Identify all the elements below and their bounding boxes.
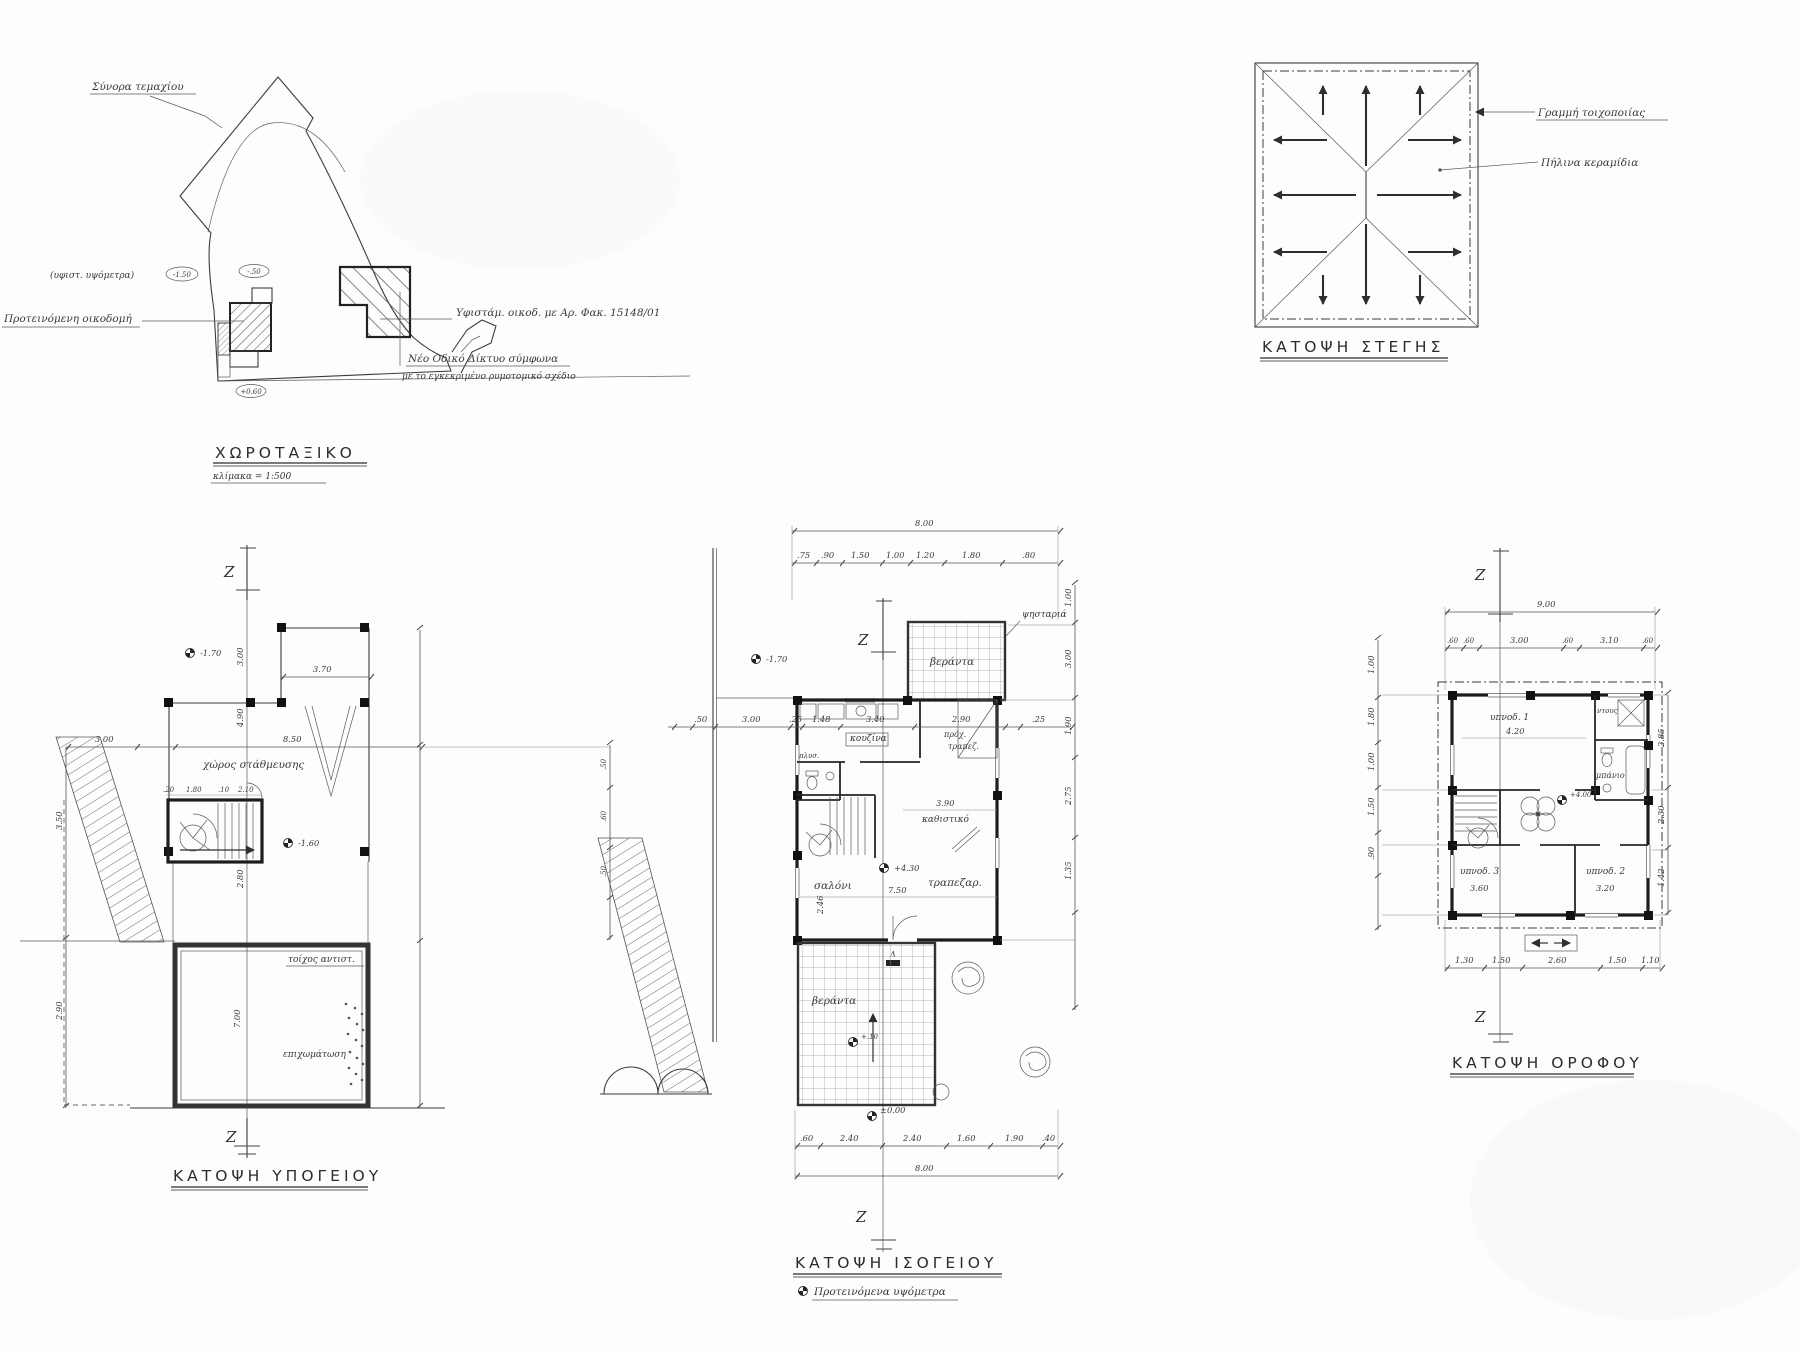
level-value: -1.60 [298, 838, 320, 848]
dim: 3.00 [742, 714, 761, 724]
dim: 1.60 [957, 1133, 976, 1143]
retaining-wall-label: τοίχος αντιστ. [288, 954, 355, 965]
dim: 2.75 [1063, 787, 1073, 806]
shower-label: ντους [1597, 707, 1618, 715]
dim: 1.00 [1366, 752, 1376, 771]
dim: 1.50 [1366, 797, 1376, 816]
level-value: ±0.00 [880, 1105, 906, 1115]
site-title: ΧΩΡΟΤΑΞΙΚΟ [215, 444, 356, 462]
dim: 1.80 [1366, 707, 1376, 726]
dim: 1.80 [962, 550, 981, 560]
dim-total: 8.00 [915, 518, 934, 528]
dim: 2.40 [902, 1133, 922, 1143]
proposed-building-label: Προτεινόμενη οικοδομή [3, 312, 132, 325]
section-letter: Z [223, 563, 235, 581]
dim: 8.50 [283, 734, 302, 744]
dim: 3.40 [866, 714, 885, 724]
dim: .60 [800, 1133, 814, 1143]
dim: .80 [1022, 550, 1036, 560]
road-label-line2: με το εγκεκριμένο ρυμοτομικό σχέδιο [402, 371, 576, 382]
dim: 1.50 [851, 550, 870, 560]
dim: 3.20 [1596, 883, 1615, 893]
dim: 1.35 [1063, 862, 1073, 880]
lower-veranda: βεράντα +.10 [798, 943, 935, 1105]
dim: 2.40 [839, 1133, 859, 1143]
dim: 2.85 [1656, 729, 1666, 748]
level-symbol [186, 649, 195, 658]
dim: .10 [218, 786, 230, 794]
dim: 1.20 [916, 550, 935, 560]
spot-elevation: -1.50 [173, 271, 191, 279]
dim-total: 8.00 [915, 1163, 934, 1173]
floor-title: ΚΑΤΟΨΗ ΟΡΟΦΟΥ [1452, 1054, 1643, 1072]
dim: 3.10 [1600, 635, 1619, 645]
level-symbol [284, 839, 293, 848]
roof-title-block: ΚΑΤΟΨΗ ΣΤΕΓΗΣ [1260, 338, 1448, 361]
dim: 3.90 [936, 798, 955, 808]
level-symbol [849, 1038, 858, 1047]
dim: .50 [600, 865, 608, 877]
veranda-label: βεράντα [811, 995, 856, 1007]
section-letter: Z [1474, 566, 1486, 584]
dim: 3.00 [1063, 649, 1073, 668]
bbq-label: ψησταριά [1022, 609, 1067, 620]
dim: 2.46 [815, 896, 825, 915]
dim: .60 [600, 810, 608, 822]
section-letter: Z [225, 1128, 237, 1146]
dim: 1.10 [1641, 955, 1660, 965]
level-value: -1.70 [766, 654, 788, 664]
spot-elevation: +0.60 [240, 388, 262, 396]
architectural-sheet: Σύνορα τεμαχίου (υφιστ. υψόμετρα) -1.50 … [0, 0, 1800, 1350]
level-symbol [752, 655, 761, 664]
dim: 1.00 [1366, 655, 1376, 674]
roof-title: ΚΑΤΟΨΗ ΣΤΕΓΗΣ [1262, 338, 1444, 356]
road-label-line1: Νέο Οδικό Δίκτυο σύμφωνα [407, 352, 558, 365]
dim: 1.90 [1063, 716, 1073, 735]
section-letter: Z [857, 631, 869, 649]
sitting-label: καθιστικό [921, 814, 969, 825]
floor-title-block: ΚΑΤΟΨΗ ΟΡΟΦΟΥ [1450, 1054, 1643, 1077]
pantry-label-2: τραπεζ. [948, 742, 979, 751]
dim: 1.50 [1608, 955, 1627, 965]
dim: .50 [600, 758, 608, 770]
masonry-line-label: Γραμμή τοιχοποιίας [1537, 106, 1645, 119]
dim: .90 [821, 550, 835, 560]
dim: 3.00 [235, 647, 245, 666]
dim: .75 [797, 550, 810, 560]
bed1-label: υπνοδ. 1 [1490, 713, 1529, 723]
dim: 7.00 [232, 1009, 242, 1028]
basement-title: ΚΑΤΟΨΗ ΥΠΟΓΕΙΟΥ [173, 1167, 382, 1185]
level-value: +4.30 [894, 863, 920, 873]
legend-label: Προτεινόμενα υψόμετρα [813, 1286, 946, 1298]
ground-title: ΚΑΤΟΨΗ ΙΣΟΓΕΙΟΥ [795, 1254, 997, 1272]
dim: 3.00 [95, 734, 114, 744]
dim: 3.00 [1510, 635, 1529, 645]
dim: 1.48 [812, 714, 830, 724]
dim: 4.90 [235, 708, 245, 728]
dim: .20 [163, 786, 175, 794]
dim: .25 [789, 714, 802, 724]
dim: .40 [1042, 1133, 1056, 1143]
dim: .25 [1032, 714, 1045, 724]
dim: .60 [1562, 637, 1574, 645]
dim: 1.42 [1656, 869, 1666, 887]
level-symbol [868, 1112, 877, 1121]
bed3-label: υπνοδ. 3 [1460, 867, 1499, 877]
section-letter: Z [1474, 1008, 1486, 1026]
existing-building-label: Υφιστάμ. οικοδ. με Αρ. Φακ. 15148/01 [456, 307, 660, 319]
pantry-label-1: πρόχ. [943, 730, 966, 739]
bath-label: μπάνιο [1596, 771, 1625, 780]
plot-boundary-label: Σύνορα τεμαχίου [91, 80, 184, 93]
laundry-label: πλυσ. [798, 752, 819, 760]
dim: .60 [1463, 637, 1475, 645]
existing-elev-label: (υφιστ. υψόμετρα) [50, 270, 135, 281]
dim: 1.50 [1492, 955, 1511, 965]
dim: 1.90 [1005, 1133, 1024, 1143]
dim: 1.00 [1063, 588, 1073, 607]
drawing-canvas: Σύνορα τεμαχίου (υφιστ. υψόμετρα) -1.50 … [0, 0, 1800, 1350]
dim: 3.50 [54, 811, 64, 830]
dim-total: 9.00 [1537, 599, 1556, 609]
backfill-label: επιχωμάτωση [283, 1049, 346, 1060]
section-letter: Z [855, 1208, 867, 1226]
parking-label: χώρος στάθμευσης [202, 759, 304, 771]
clay-tiles-label: Πήλινα κεραμίδια [1540, 156, 1638, 169]
level-symbol [1558, 796, 1567, 805]
dim: 1.80 [186, 786, 202, 794]
veranda-label: βεράντα [929, 656, 974, 668]
dim: .60 [1642, 637, 1654, 645]
dim: .90 [1366, 846, 1376, 860]
level-symbol [880, 864, 889, 873]
dim: 1.00 [886, 550, 905, 560]
living-label: σαλόνι [814, 880, 852, 892]
bed2-label: υπνοδ. 2 [1586, 867, 1625, 877]
dim: 4.20 [1505, 726, 1525, 736]
kitchen-label: κουζίνα [849, 733, 887, 744]
dim: .50 [694, 714, 708, 724]
level-value: -1.70 [200, 648, 222, 658]
dim: 2.90 [54, 1001, 64, 1021]
dim: 3.60 [1470, 883, 1489, 893]
spot-elevation: -.50 [247, 268, 261, 276]
dim: .60 [1447, 637, 1459, 645]
dim: 2.30 [1656, 805, 1666, 825]
dim: 1.30 [1455, 955, 1474, 965]
dim: 2.60 [1547, 955, 1567, 965]
basement-title-block: ΚΑΤΟΨΗ ΥΠΟΓΕΙΟΥ [171, 1167, 382, 1190]
level-value: +4.00 [1570, 791, 1592, 799]
dim: 3.70 [313, 664, 332, 674]
level-value: +.10 [861, 1033, 879, 1041]
dim: 2.90 [951, 714, 971, 724]
dim: 2.80 [235, 869, 245, 889]
dining-label: τραπεζαρ. [928, 877, 982, 889]
dim: 2.10 [237, 786, 254, 794]
level-symbol [799, 1287, 808, 1296]
site-scale: κλίμακα = 1:500 [212, 471, 292, 482]
dim: 7.50 [888, 885, 907, 895]
